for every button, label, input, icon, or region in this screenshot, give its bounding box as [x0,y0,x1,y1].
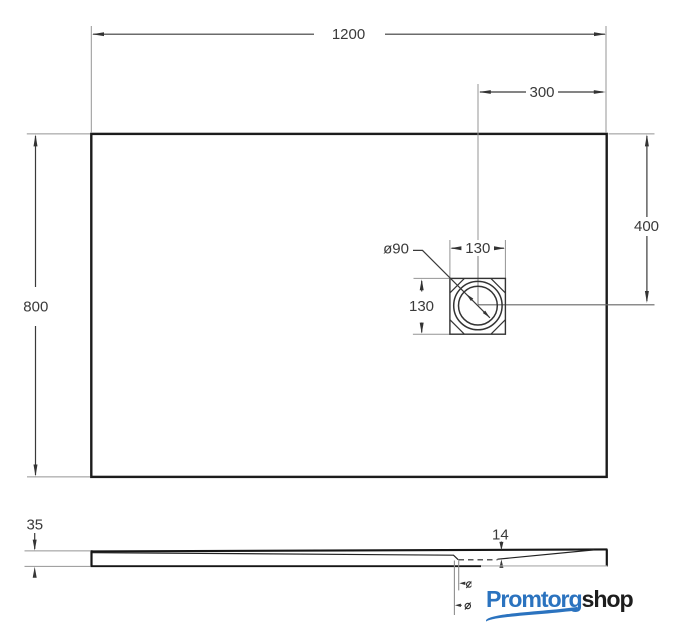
svg-text:130: 130 [409,298,434,315]
svg-text:300: 300 [529,84,554,101]
svg-text:ø90: ø90 [383,241,409,258]
svg-text:400: 400 [634,218,659,235]
svg-text:14: 14 [492,526,509,543]
svg-text:35: 35 [26,517,43,534]
svg-text:Promtorgshop: Promtorgshop [486,586,633,612]
svg-text:800: 800 [23,299,48,316]
svg-text:130: 130 [465,240,490,257]
svg-text:1200: 1200 [332,26,365,43]
